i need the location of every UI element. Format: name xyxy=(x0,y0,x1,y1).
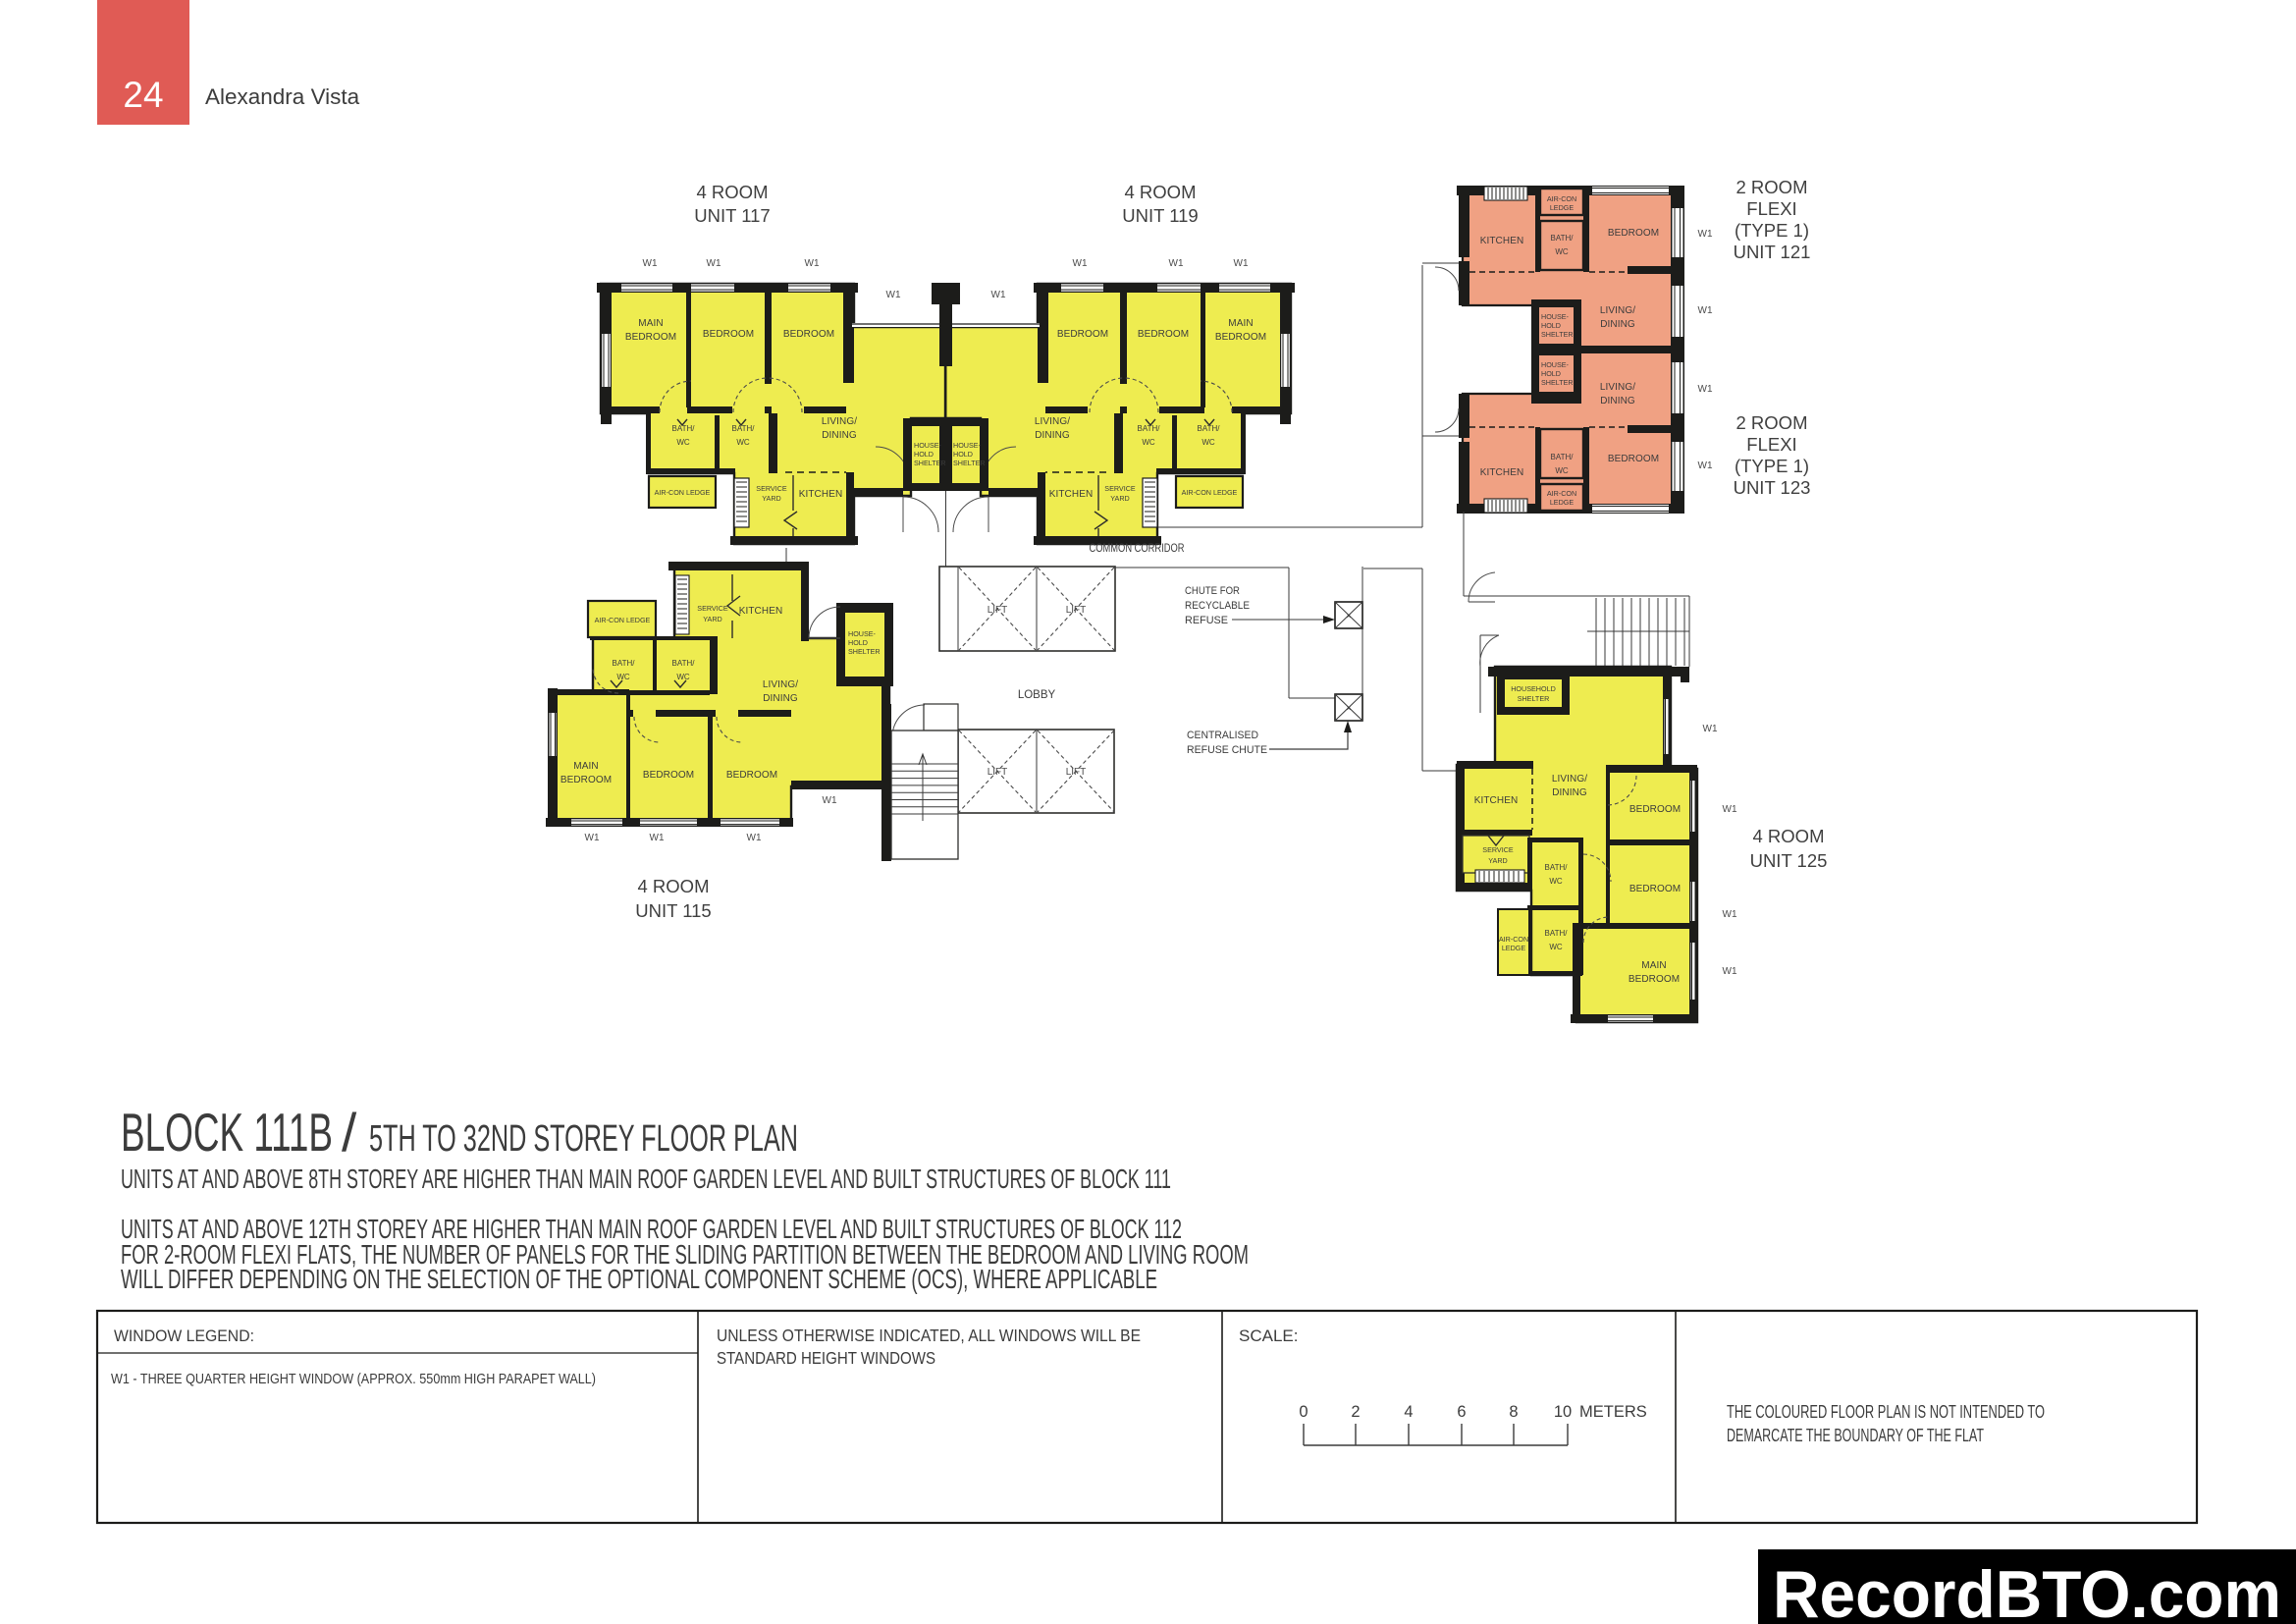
svg-text:BEDROOM: BEDROOM xyxy=(783,329,834,340)
svg-text:BATH/: BATH/ xyxy=(1198,424,1221,433)
svg-text:4: 4 xyxy=(1404,1403,1413,1421)
svg-text:MAIN: MAIN xyxy=(1228,318,1253,329)
svg-text:LIFT: LIFT xyxy=(988,767,1008,778)
svg-text:KITCHEN: KITCHEN xyxy=(1480,467,1524,478)
svg-text:WC: WC xyxy=(676,673,690,681)
svg-text:W1: W1 xyxy=(886,290,901,300)
svg-text:KITCHEN: KITCHEN xyxy=(1474,795,1519,806)
svg-text:HOLD: HOLD xyxy=(1541,321,1561,330)
svg-text:MAIN: MAIN xyxy=(638,318,663,329)
svg-text:LIFT: LIFT xyxy=(1066,767,1087,778)
svg-text:MAIN: MAIN xyxy=(573,761,598,772)
svg-text:DINING: DINING xyxy=(1552,787,1587,798)
svg-text:BEDROOM: BEDROOM xyxy=(1629,974,1680,985)
svg-text:BATH/: BATH/ xyxy=(1138,424,1161,433)
svg-text:HOLD: HOLD xyxy=(953,450,973,459)
svg-text:W1: W1 xyxy=(1169,258,1184,269)
svg-text:BATH/: BATH/ xyxy=(1551,453,1575,461)
svg-text:LIVING/: LIVING/ xyxy=(822,416,857,427)
svg-text:4 ROOM: 4 ROOM xyxy=(1125,182,1197,202)
svg-text:BEDROOM: BEDROOM xyxy=(643,770,694,781)
svg-text:×: × xyxy=(1347,612,1352,621)
svg-text:WC: WC xyxy=(1142,438,1155,447)
svg-text:4 ROOM: 4 ROOM xyxy=(697,182,769,202)
svg-text:AIR-CON: AIR-CON xyxy=(1547,194,1576,203)
svg-text:Alexandra Vista: Alexandra Vista xyxy=(205,84,360,109)
svg-text:BATH/: BATH/ xyxy=(672,424,696,433)
svg-text:(TYPE 1): (TYPE 1) xyxy=(1735,220,1809,241)
svg-text:STANDARD HEIGHT WINDOWS: STANDARD HEIGHT WINDOWS xyxy=(717,1348,935,1368)
svg-text:HOUSEHOLD: HOUSEHOLD xyxy=(1511,684,1556,693)
svg-text:W1: W1 xyxy=(1723,966,1737,977)
svg-text:SHELTER: SHELTER xyxy=(1541,378,1574,387)
svg-text:(TYPE 1): (TYPE 1) xyxy=(1735,456,1809,476)
svg-text:COMMON CORRIDOR: COMMON CORRIDOR xyxy=(1090,543,1185,555)
svg-text:W1: W1 xyxy=(585,833,600,843)
svg-text:WC: WC xyxy=(1201,438,1215,447)
svg-text:BEDROOM: BEDROOM xyxy=(1608,454,1659,464)
svg-text:HOLD: HOLD xyxy=(848,638,868,647)
svg-text:WC: WC xyxy=(1549,943,1563,951)
svg-text:UNIT 117: UNIT 117 xyxy=(694,205,770,226)
svg-text:FLEXI: FLEXI xyxy=(1746,198,1796,219)
svg-text:YARD: YARD xyxy=(1110,494,1129,503)
svg-text:6: 6 xyxy=(1457,1403,1466,1421)
svg-text:W1: W1 xyxy=(1723,804,1737,815)
svg-text:W1: W1 xyxy=(1703,724,1718,734)
svg-text:LIVING/: LIVING/ xyxy=(1552,774,1587,785)
svg-text:YARD: YARD xyxy=(1488,856,1507,865)
svg-text:WC: WC xyxy=(616,673,630,681)
svg-text:YARD: YARD xyxy=(703,615,721,623)
svg-text:UNLESS OTHERWISE INDICATED, AL: UNLESS OTHERWISE INDICATED, ALL WINDOWS … xyxy=(717,1326,1141,1345)
svg-text:0: 0 xyxy=(1299,1403,1308,1421)
svg-text:LIVING/: LIVING/ xyxy=(1600,305,1635,316)
svg-text:W1: W1 xyxy=(643,258,658,269)
svg-text:UNIT 123: UNIT 123 xyxy=(1734,477,1811,498)
svg-text:SHELTER: SHELTER xyxy=(914,459,946,467)
svg-text:×: × xyxy=(1347,704,1352,713)
svg-text:REFUSE CHUTE: REFUSE CHUTE xyxy=(1187,744,1267,756)
svg-text:BATH/: BATH/ xyxy=(1545,929,1569,938)
svg-text:KITCHEN: KITCHEN xyxy=(1480,236,1524,246)
svg-text:DINING: DINING xyxy=(822,430,857,441)
svg-text:DINING: DINING xyxy=(1600,396,1635,406)
svg-text:REFUSE: REFUSE xyxy=(1185,615,1228,626)
svg-text:SHELTER: SHELTER xyxy=(953,459,986,467)
svg-text:HOUSE-: HOUSE- xyxy=(1541,360,1570,369)
svg-text:METERS: METERS xyxy=(1579,1403,1647,1421)
svg-text:W1: W1 xyxy=(747,833,762,843)
svg-text:4 ROOM: 4 ROOM xyxy=(638,876,710,896)
svg-text:LEDGE: LEDGE xyxy=(1550,498,1575,507)
svg-text:BLOCK 111B: BLOCK 111B xyxy=(121,1102,333,1163)
svg-text:AIR-CON LEDGE: AIR-CON LEDGE xyxy=(595,616,651,624)
svg-text:W1: W1 xyxy=(823,795,837,806)
svg-text:BEDROOM: BEDROOM xyxy=(703,329,754,340)
svg-text:KITCHEN: KITCHEN xyxy=(739,606,783,617)
svg-text:W1 - THREE QUARTER HEIGHT WIND: W1 - THREE QUARTER HEIGHT WINDOW (APPROX… xyxy=(111,1371,596,1387)
svg-text:DINING: DINING xyxy=(1600,319,1635,330)
svg-text:BEDROOM: BEDROOM xyxy=(1057,329,1108,340)
svg-text:SHELTER: SHELTER xyxy=(848,647,881,656)
svg-text:SCALE:: SCALE: xyxy=(1239,1326,1298,1345)
svg-text:LEDGE: LEDGE xyxy=(1550,203,1575,212)
svg-text:THE COLOURED FLOOR PLAN IS NOT: THE COLOURED FLOOR PLAN IS NOT INTENDED … xyxy=(1727,1401,2045,1422)
svg-text:FLEXI: FLEXI xyxy=(1746,434,1796,455)
svg-text:BEDROOM: BEDROOM xyxy=(561,775,612,785)
svg-text:LIFT: LIFT xyxy=(988,605,1008,616)
svg-text:UNIT 119: UNIT 119 xyxy=(1122,205,1198,226)
svg-text:AIR-CON: AIR-CON xyxy=(1499,935,1528,944)
svg-text:W1: W1 xyxy=(991,290,1006,300)
svg-text:UNIT 121: UNIT 121 xyxy=(1734,242,1811,262)
svg-text:WC: WC xyxy=(1549,877,1563,886)
svg-text:DINING: DINING xyxy=(1035,430,1070,441)
svg-text:LEDGE: LEDGE xyxy=(1502,944,1526,952)
svg-text:CENTRALISED: CENTRALISED xyxy=(1187,730,1258,741)
svg-text:W1: W1 xyxy=(1698,460,1713,471)
svg-text:W1: W1 xyxy=(1723,909,1737,920)
svg-text:SHELTER: SHELTER xyxy=(1541,330,1574,339)
svg-text:RECYCLABLE: RECYCLABLE xyxy=(1185,600,1250,612)
svg-text:2 ROOM: 2 ROOM xyxy=(1736,412,1808,433)
svg-text:2: 2 xyxy=(1351,1403,1360,1421)
svg-text:KITCHEN: KITCHEN xyxy=(1049,489,1094,500)
svg-text:WILL DIFFER DEPENDING ON THE S: WILL DIFFER DEPENDING ON THE SELECTION O… xyxy=(121,1264,1157,1294)
svg-text:RecordBTO.com: RecordBTO.com xyxy=(1773,1557,2281,1624)
svg-text:BEDROOM: BEDROOM xyxy=(1138,329,1189,340)
svg-text:AIR-CON LEDGE: AIR-CON LEDGE xyxy=(1182,488,1238,497)
svg-text:LIVING/: LIVING/ xyxy=(763,679,798,690)
svg-text:BEDROOM: BEDROOM xyxy=(1608,228,1659,239)
svg-text:BEDROOM: BEDROOM xyxy=(1629,884,1681,894)
svg-text:LIVING/: LIVING/ xyxy=(1035,416,1070,427)
svg-text:W1: W1 xyxy=(1234,258,1249,269)
svg-text:BEDROOM: BEDROOM xyxy=(726,770,777,781)
svg-text:BATH/: BATH/ xyxy=(672,659,696,668)
svg-text:DEMARCATE THE BOUNDARY OF THE: DEMARCATE THE BOUNDARY OF THE FLAT xyxy=(1727,1425,1984,1445)
svg-text:WC: WC xyxy=(736,438,750,447)
svg-text:8: 8 xyxy=(1509,1403,1518,1421)
svg-text:HOUSE-: HOUSE- xyxy=(914,441,942,450)
svg-text:W1: W1 xyxy=(1698,384,1713,395)
svg-text:LIVING/: LIVING/ xyxy=(1600,382,1635,393)
svg-text:W1: W1 xyxy=(707,258,721,269)
svg-text:BATH/: BATH/ xyxy=(1551,234,1575,243)
svg-text:W1: W1 xyxy=(1073,258,1088,269)
svg-text:10: 10 xyxy=(1554,1403,1572,1421)
svg-text:WINDOW LEGEND:: WINDOW LEGEND: xyxy=(114,1326,254,1345)
svg-text:HOLD: HOLD xyxy=(1541,369,1561,378)
svg-text:YARD: YARD xyxy=(762,494,780,503)
svg-text:2 ROOM: 2 ROOM xyxy=(1736,177,1808,197)
svg-text:KITCHEN: KITCHEN xyxy=(799,489,843,500)
svg-text:W1: W1 xyxy=(650,833,665,843)
svg-text:24: 24 xyxy=(123,75,163,115)
svg-text:UNIT 125: UNIT 125 xyxy=(1750,850,1828,871)
svg-text:AIR-CON: AIR-CON xyxy=(1547,489,1576,498)
svg-text:CHUTE FOR: CHUTE FOR xyxy=(1185,585,1240,597)
svg-text:HOUSE-: HOUSE- xyxy=(953,441,982,450)
svg-text:BEDROOM: BEDROOM xyxy=(1215,332,1266,343)
svg-text:LOBBY: LOBBY xyxy=(1018,689,1056,701)
svg-text:W1: W1 xyxy=(805,258,820,269)
svg-text:/: / xyxy=(342,1102,357,1163)
svg-text:SERVICE: SERVICE xyxy=(697,604,728,613)
svg-text:SERVICE: SERVICE xyxy=(1482,845,1514,854)
svg-text:MAIN: MAIN xyxy=(1641,960,1666,971)
svg-text:UNITS AT AND ABOVE 8TH STOREY: UNITS AT AND ABOVE 8TH STOREY ARE HIGHER… xyxy=(121,1164,1171,1194)
svg-text:SERVICE: SERVICE xyxy=(1104,484,1136,493)
svg-text:W1: W1 xyxy=(1698,305,1713,316)
svg-text:BATH/: BATH/ xyxy=(613,659,636,668)
svg-text:BEDROOM: BEDROOM xyxy=(1629,804,1681,815)
svg-text:SHELTER: SHELTER xyxy=(1518,694,1550,703)
svg-text:WC: WC xyxy=(1555,466,1569,475)
svg-text:AIR-CON LEDGE: AIR-CON LEDGE xyxy=(655,488,711,497)
svg-text:HOLD: HOLD xyxy=(914,450,934,459)
svg-text:HOUSE-: HOUSE- xyxy=(848,629,877,638)
svg-text:W1: W1 xyxy=(1698,229,1713,240)
svg-text:BATH/: BATH/ xyxy=(732,424,756,433)
svg-text:BEDROOM: BEDROOM xyxy=(625,332,676,343)
svg-text:SERVICE: SERVICE xyxy=(756,484,787,493)
svg-text:UNIT 115: UNIT 115 xyxy=(635,900,711,921)
svg-text:4 ROOM: 4 ROOM xyxy=(1753,826,1825,846)
svg-text:BATH/: BATH/ xyxy=(1545,863,1569,872)
svg-text:HOUSE-: HOUSE- xyxy=(1541,312,1570,321)
svg-text:LIFT: LIFT xyxy=(1066,605,1087,616)
svg-text:WC: WC xyxy=(676,438,690,447)
svg-text:5TH TO 32ND STOREY FLOOR PLAN: 5TH TO 32ND STOREY FLOOR PLAN xyxy=(369,1118,798,1160)
svg-text:DINING: DINING xyxy=(763,693,798,704)
svg-text:WC: WC xyxy=(1555,247,1569,256)
